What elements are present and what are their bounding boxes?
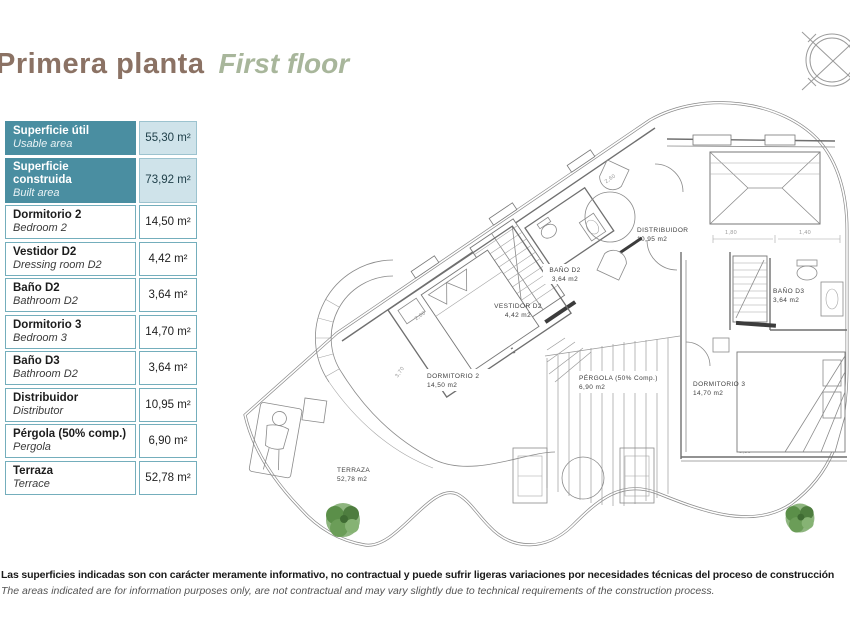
table-row: Vestidor D2Dressing room D2 4,42 m² [5, 242, 197, 276]
row-label-es: Baño D3 [13, 355, 128, 368]
row-value: 55,30 m² [139, 121, 197, 155]
row-label-es: Distribuidor [13, 392, 128, 405]
sink-icon [826, 289, 838, 309]
window-icon [765, 135, 795, 145]
table-row: Dormitorio 3Bedroom 3 14,70 m² [5, 315, 197, 349]
window-icon [693, 135, 731, 145]
row-label-en: Distributor [13, 405, 128, 418]
room-label-bano-d3: BAÑO D3 [773, 286, 804, 295]
room-area-bano-d3: 3,64 m2 [773, 297, 799, 304]
area-table: Superficie útilUsable area 55,30 m² Supe… [5, 121, 197, 497]
room-label-vestidor-d2: VESTIDOR D2 [494, 303, 542, 310]
row-label-en: Bedroom 2 [13, 222, 128, 235]
table-row: Superficie construidaBuilt area 73,92 m² [5, 158, 197, 203]
armchair-icon [597, 246, 630, 280]
person-icon [263, 423, 289, 450]
room-area-vestidor-d2: 4,42 m2 [505, 312, 531, 319]
row-label-en: Bedroom 3 [13, 332, 128, 345]
row-value: 3,64 m² [139, 351, 197, 385]
row-label-es: Baño D2 [13, 282, 128, 295]
toilet-icon [797, 266, 817, 280]
person-icon [271, 410, 287, 426]
row-label-es: Vestidor D2 [13, 246, 128, 259]
row-value: 10,95 m² [139, 388, 197, 422]
side-table-icon [302, 398, 327, 423]
disclaimer-english: The areas indicated are for information … [1, 585, 849, 597]
row-label-es: Superficie construida [13, 161, 128, 187]
row-label-en: Pergola [13, 441, 128, 454]
table-row: DistribuidorDistributor 10,95 m² [5, 388, 197, 422]
room-area-dormitorio-2: 14,50 m2 [427, 382, 457, 389]
row-value: 52,78 m² [139, 461, 197, 495]
row-label-es: Superficie útil [13, 125, 128, 138]
row-label-en: Bathroom D2 [13, 295, 128, 308]
disclaimer: Las superficies indicadas son con caráct… [1, 569, 849, 597]
room-area-dormitorio-3: 14,70 m2 [693, 390, 723, 397]
tree-icon [326, 503, 360, 537]
floor-plan-page: Primera plantaFirst floor Superficie úti… [0, 0, 850, 620]
row-label-en: Bathroom D2 [13, 368, 128, 381]
row-value: 4,42 m² [139, 242, 197, 276]
row-value: 3,64 m² [139, 278, 197, 312]
door-arc [686, 342, 710, 366]
room-area-pergola: 6,90 m2 [579, 384, 605, 391]
tree-icon [786, 504, 815, 533]
table-row: TerrazaTerrace 52,78 m² [5, 461, 197, 495]
sun-lounger-icon [249, 402, 303, 478]
row-label-es: Dormitorio 2 [13, 209, 128, 222]
toilet-icon [797, 260, 817, 266]
title-spanish: Primera planta [0, 48, 204, 80]
row-label-en: Terrace [13, 478, 128, 491]
row-value: 14,70 m² [139, 315, 197, 349]
row-label-en: Built area [13, 187, 128, 200]
person-icon [263, 448, 282, 472]
north-wall [667, 135, 835, 147]
table-row: Baño D3Bathroom D2 3,64 m² [5, 351, 197, 385]
pergola-slats [545, 336, 680, 506]
row-label-es: Pérgola (50% comp.) [13, 428, 128, 441]
dim-label: 2,60 [604, 173, 617, 185]
disclaimer-spanish: Las superficies indicadas son con caráct… [1, 569, 849, 581]
room-label-bano-d2: BAÑO D2 [549, 265, 580, 274]
compass-icon [802, 32, 850, 90]
room-area-distribuidor: 10,95 m2 [637, 236, 667, 243]
room-area-terraza: 52,78 m2 [337, 476, 367, 483]
row-value: 6,90 m² [139, 424, 197, 458]
dim-label: 3,70 [394, 366, 406, 379]
terrace-dining-set [513, 448, 654, 503]
nightstand-icon [713, 338, 729, 352]
row-label-es: Terraza [13, 465, 128, 478]
table-row: Superficie útilUsable area 55,30 m² [5, 121, 197, 155]
floor-plan-drawing: 1,80 1,40 1,40 2,00 2,60 3,70 3,30 [225, 20, 850, 560]
table-row: Baño D2Bathroom D2 3,64 m² [5, 278, 197, 312]
roof-plan [710, 152, 820, 224]
row-label-en: Usable area [13, 138, 128, 151]
door-arc [647, 240, 677, 270]
room-label-distribuidor: DISTRIBUIDOR [637, 227, 688, 234]
dim-label: 1,40 [799, 230, 811, 236]
table-row: Dormitorio 2Bedroom 2 14,50 m² [5, 205, 197, 239]
row-label-es: Dormitorio 3 [13, 319, 128, 332]
round-table-icon [562, 457, 604, 499]
room-label-dormitorio-2: DORMITORIO 2 [427, 373, 479, 380]
row-label-en: Dressing room D2 [13, 259, 128, 272]
room-label-dormitorio-3: DORMITORIO 3 [693, 381, 745, 388]
room-label-terraza: TERRAZA [337, 467, 370, 474]
door-arc [655, 164, 683, 192]
room-label-pergola: PÉRGOLA (50% Comp.) [579, 373, 658, 382]
row-value: 73,92 m² [139, 158, 197, 203]
row-value: 14,50 m² [139, 205, 197, 239]
table-row: Pérgola (50% comp.)Pergola 6,90 m² [5, 424, 197, 458]
sink-icon [821, 282, 843, 316]
dim-label: 2,00 [414, 310, 427, 322]
room-area-bano-d2: 3,64 m2 [552, 276, 578, 283]
dim-label: 1,80 [725, 230, 737, 236]
